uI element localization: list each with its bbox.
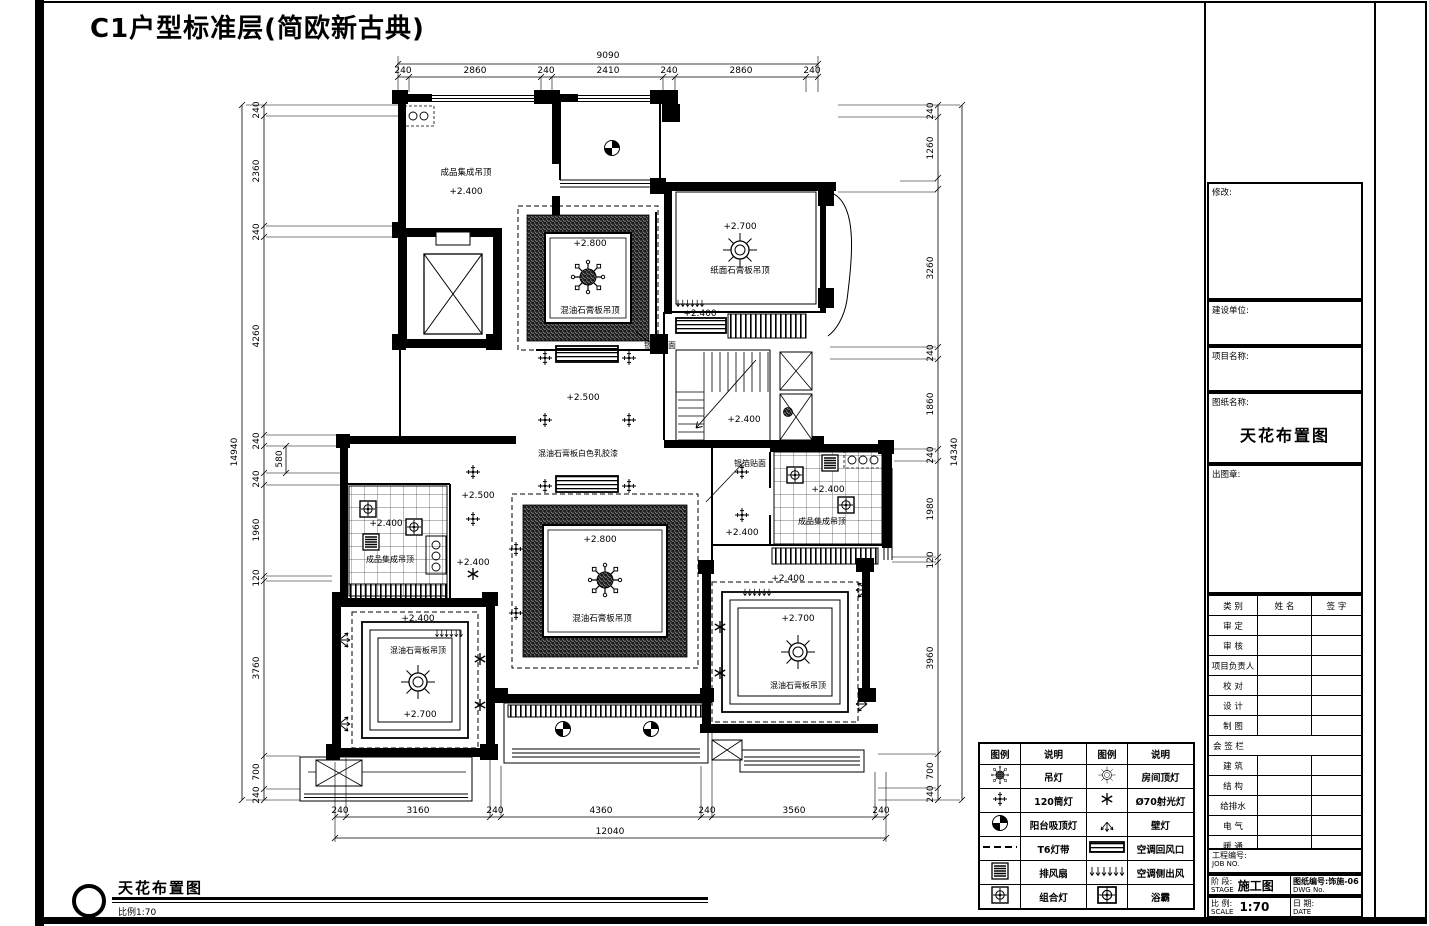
combo-light-icon — [787, 467, 803, 483]
svg-text:240: 240 — [252, 223, 262, 240]
titleblock-client: 建设单位: — [1207, 300, 1363, 346]
svg-text:1260: 1260 — [926, 136, 936, 159]
legend-label: 壁灯 — [1128, 813, 1195, 837]
legend-label: 排风扇 — [1021, 861, 1087, 885]
spotlight-icon — [475, 699, 485, 711]
room-label: 成品集成吊顶 — [366, 554, 414, 564]
sign-header: 签 字 — [1312, 595, 1363, 616]
level-label: +2.800 — [573, 239, 607, 249]
svg-text:700: 700 — [252, 763, 262, 780]
level-label: +2.700 — [781, 614, 815, 624]
scale-value: 1:70 — [1239, 900, 1269, 914]
svg-text:240: 240 — [252, 101, 262, 118]
dimension-text-bottom: 12040 240 3160 240 4360 240 3560 240 — [331, 806, 889, 837]
bath-heater-icon — [1089, 885, 1125, 905]
titleblock-scale-row: 比 例: SCALE 1:70 日 期: DATE — [1207, 896, 1363, 918]
combo-light-icon — [838, 497, 854, 513]
legend-row: 阳台吸顶灯 壁灯 — [979, 813, 1194, 837]
downlight-icon — [982, 789, 1018, 809]
title-underline-thin — [112, 902, 708, 903]
drawing-title: 天花布置图 — [118, 877, 203, 898]
downlight-icon — [466, 512, 480, 526]
svg-text:2860: 2860 — [464, 66, 487, 76]
svg-text:240: 240 — [926, 785, 936, 802]
room-label: 混油石膏板吊顶 — [390, 645, 446, 655]
sign-header: 姓 名 — [1258, 595, 1312, 616]
room-label: 混油石膏板吊顶 — [572, 613, 632, 624]
svg-text:240: 240 — [926, 102, 936, 119]
downlight-icon — [622, 413, 636, 427]
downlight-icon — [538, 413, 552, 427]
svg-text:240: 240 — [803, 66, 820, 76]
dimension-text-right: 14340 240 1260 3260 240 1860 240 1980 12… — [926, 102, 960, 802]
stairs — [676, 350, 770, 444]
svg-text:240: 240 — [537, 66, 554, 76]
svg-text:2410: 2410 — [597, 66, 620, 76]
stage-value: 施工图 — [1238, 877, 1274, 894]
titleblock-stamp: 出图章: — [1207, 464, 1363, 594]
sign-role: 建 筑 — [1208, 756, 1258, 776]
level-label: +2.400 — [683, 309, 717, 319]
spotlight-icon — [475, 653, 485, 665]
svg-text:240: 240 — [486, 806, 503, 816]
svg-text:240: 240 — [698, 806, 715, 816]
legend-label: 空调回风口 — [1128, 837, 1195, 861]
foil-note: 银箔贴面 — [644, 340, 676, 350]
room-ceiling-light-icon — [1089, 765, 1125, 785]
jobno-en: JOB NO. — [1209, 860, 1361, 868]
legend-label: Ø70射光灯 — [1128, 789, 1195, 813]
level-label: +2.500 — [461, 491, 495, 501]
legend-label: 吊灯 — [1021, 765, 1087, 789]
svg-text:3560: 3560 — [783, 806, 806, 816]
room-ceiling-light-icon — [723, 233, 757, 267]
sign-role: 结 构 — [1208, 776, 1258, 796]
level-label: +2.400 — [727, 415, 761, 425]
level-label: +2.400 — [811, 485, 845, 495]
svg-text:240: 240 — [394, 66, 411, 76]
titleblock-project: 项目名称: — [1207, 346, 1363, 392]
titleblock-stage-row: 阶 段: STAGE 施工图 图纸编号:饰施-06 DWG No. — [1207, 874, 1363, 896]
downlight-icon — [735, 508, 749, 522]
exhaust-fan-icon — [363, 534, 379, 550]
titleblock-jobno: 工程编号: JOB NO. — [1207, 848, 1363, 874]
legend-label: 120筒灯 — [1021, 789, 1087, 813]
chandelier-icon — [982, 765, 1018, 785]
downlight-icon — [509, 542, 523, 556]
svg-text:1960: 1960 — [252, 518, 262, 541]
sign-role: 校 对 — [1208, 676, 1258, 696]
svg-text:3960: 3960 — [926, 646, 936, 669]
svg-text:3160: 3160 — [407, 806, 430, 816]
dimension-text-left: 14940 240 2360 240 4260 240 580 240 1960… — [230, 101, 285, 803]
level-label: +2.800 — [583, 535, 617, 545]
svg-text:1860: 1860 — [926, 392, 936, 415]
level-label: +2.400 — [771, 574, 805, 584]
project-label: 项目名称: — [1209, 348, 1361, 362]
level-label: +2.400 — [456, 558, 490, 568]
foil-note: 银箔贴面 — [734, 458, 766, 468]
signature-table: 类 别 姓 名 签 字 审 定 审 核 项目负责人 校 对 设 计 制 图 会 … — [1207, 594, 1363, 857]
legend-table: 图例 说明 图例 说明 吊灯 房间顶灯 120筒灯 Ø70射光灯 阳台吸顶灯 壁… — [978, 742, 1195, 910]
downlight-icon — [466, 465, 480, 479]
svg-text:1980: 1980 — [926, 497, 936, 520]
svg-text:4360: 4360 — [590, 806, 613, 816]
titleblock-revision: 修改: — [1207, 182, 1363, 300]
legend-header: 说明 — [1021, 743, 1087, 765]
svg-text:240: 240 — [252, 786, 262, 803]
combo-light-icon — [360, 501, 376, 517]
svg-text:700: 700 — [926, 762, 936, 779]
ac-return-icon — [1089, 837, 1125, 857]
ac-side-outlet-icon — [676, 300, 703, 307]
chandelier-icon — [588, 563, 621, 596]
spotlight-icon — [468, 568, 478, 580]
legend-label: 房间顶灯 — [1128, 765, 1195, 789]
svg-text:2360: 2360 — [252, 159, 262, 182]
svg-text:9090: 9090 — [597, 51, 620, 61]
legend-header: 说明 — [1128, 743, 1195, 765]
sign-role: 电 气 — [1208, 816, 1258, 836]
chandelier-icon — [571, 260, 604, 293]
ac-side-outlet-icon — [1089, 861, 1125, 881]
scale-en: SCALE — [1211, 908, 1233, 916]
titleblock-sheetname: 图纸名称: 天花布置图 — [1207, 392, 1363, 464]
level-label: +2.700 — [403, 710, 437, 720]
level-label: +2.700 — [723, 222, 757, 232]
sign-role: 设 计 — [1208, 696, 1258, 716]
legend-row: 吊灯 房间顶灯 — [979, 765, 1194, 789]
drawing-mark-circle — [72, 884, 106, 918]
svg-text:240: 240 — [252, 432, 262, 449]
svg-text:120: 120 — [926, 551, 936, 568]
balcony-light-icon — [605, 141, 620, 156]
dwgno-label: 图纸编号: — [1293, 877, 1328, 886]
date-label: 日 期: — [1293, 899, 1359, 908]
sheetname-value: 天花布置图 — [1209, 422, 1361, 446]
level-label: +2.400 — [449, 187, 483, 197]
svg-text:580: 580 — [275, 450, 285, 467]
exhaust-fan-icon — [982, 861, 1018, 881]
countersign-label: 会 签 栏 — [1208, 736, 1362, 756]
combo-light-icon — [982, 885, 1018, 905]
downlight-icon — [622, 351, 636, 365]
legend-row: T6灯带 空调回风口 — [979, 837, 1194, 861]
balcony-light-icon — [982, 813, 1018, 833]
svg-text:3260: 3260 — [926, 256, 936, 279]
legend-row: 120筒灯 Ø70射光灯 — [979, 789, 1194, 813]
room-label: 混油石膏板吊顶 — [770, 680, 826, 690]
legend-header: 图例 — [979, 743, 1021, 765]
t6-strip-icon — [982, 837, 1018, 857]
room-label: 纸面石膏板吊顶 — [710, 265, 770, 276]
revision-label: 修改: — [1209, 184, 1361, 198]
downlight-icon — [622, 479, 636, 493]
legend-row: 组合灯 浴霸 — [979, 885, 1194, 910]
stamp-label: 出图章: — [1209, 466, 1361, 480]
sign-header: 类 别 — [1208, 595, 1258, 616]
stage-label: 阶 段: — [1211, 877, 1234, 886]
combo-light-icon — [406, 519, 422, 535]
spotlight-icon — [1089, 789, 1125, 809]
sign-role: 审 定 — [1208, 616, 1258, 636]
sign-role: 给排水 — [1208, 796, 1258, 816]
balcony-light-icon — [644, 722, 659, 737]
legend-label: 组合灯 — [1021, 885, 1087, 910]
sign-role: 审 核 — [1208, 636, 1258, 656]
date-en: DATE — [1293, 908, 1359, 916]
scale-label: 比 例: — [1211, 899, 1233, 908]
level-label: +2.400 — [725, 528, 759, 538]
svg-text:240: 240 — [926, 344, 936, 361]
svg-text:240: 240 — [926, 446, 936, 463]
level-label: +2.400 — [369, 519, 403, 529]
level-label: +2.500 — [566, 393, 600, 403]
title-underline — [112, 897, 708, 900]
ceiling-note: 混油石膏板白色乳胶漆 — [538, 448, 618, 458]
svg-text:14940: 14940 — [230, 437, 240, 466]
svg-text:240: 240 — [331, 806, 348, 816]
legend-label: T6灯带 — [1021, 837, 1087, 861]
sign-role: 项目负责人 — [1208, 656, 1258, 676]
svg-text:12040: 12040 — [596, 827, 625, 837]
legend-label: 空调侧出风 — [1128, 861, 1195, 885]
room-label: 成品集成吊顶 — [440, 167, 492, 178]
downlight-icon — [538, 351, 552, 365]
downlight-icon — [538, 479, 552, 493]
legend-label: 阳台吸顶灯 — [1021, 813, 1087, 837]
svg-text:240: 240 — [660, 66, 677, 76]
svg-text:240: 240 — [872, 806, 889, 816]
room-label: 成品集成吊顶 — [798, 516, 846, 526]
legend-label: 浴霸 — [1128, 885, 1195, 910]
dimension-text-top: 9090 240 2860 240 2410 240 2860 240 — [394, 51, 820, 76]
svg-text:120: 120 — [252, 569, 262, 586]
svg-text:3760: 3760 — [252, 656, 262, 679]
legend-header-row: 图例 说明 图例 说明 — [979, 743, 1194, 765]
svg-text:240: 240 — [252, 470, 262, 487]
legend-row: 排风扇 空调侧出风 — [979, 861, 1194, 885]
svg-text:2860: 2860 — [730, 66, 753, 76]
svg-text:14340: 14340 — [950, 437, 960, 466]
exhaust-fan-icon — [822, 455, 838, 471]
wall-lamp-icon — [1089, 813, 1125, 833]
stage-en: STAGE — [1211, 886, 1234, 894]
balcony-light-icon — [556, 722, 571, 737]
level-label: +2.400 — [401, 614, 435, 624]
sign-role: 制 图 — [1208, 716, 1258, 736]
svg-text:4260: 4260 — [252, 324, 262, 347]
dwgno-value: 饰施-06 — [1328, 877, 1358, 886]
elevator — [424, 232, 482, 334]
legend-header: 图例 — [1087, 743, 1128, 765]
drawing-sheet: C1户型标准层(简欧新古典) — [0, 0, 1429, 926]
sheetname-label: 图纸名称: — [1209, 394, 1361, 408]
client-label: 建设单位: — [1209, 302, 1361, 316]
downlight-icon — [509, 606, 523, 620]
room-label: 混油石膏板吊顶 — [560, 305, 620, 316]
drawing-scale: 比例1:70 — [118, 905, 156, 918]
dwgno-en: DWG No. — [1293, 886, 1359, 894]
jobno-label: 工程编号: — [1209, 850, 1361, 860]
